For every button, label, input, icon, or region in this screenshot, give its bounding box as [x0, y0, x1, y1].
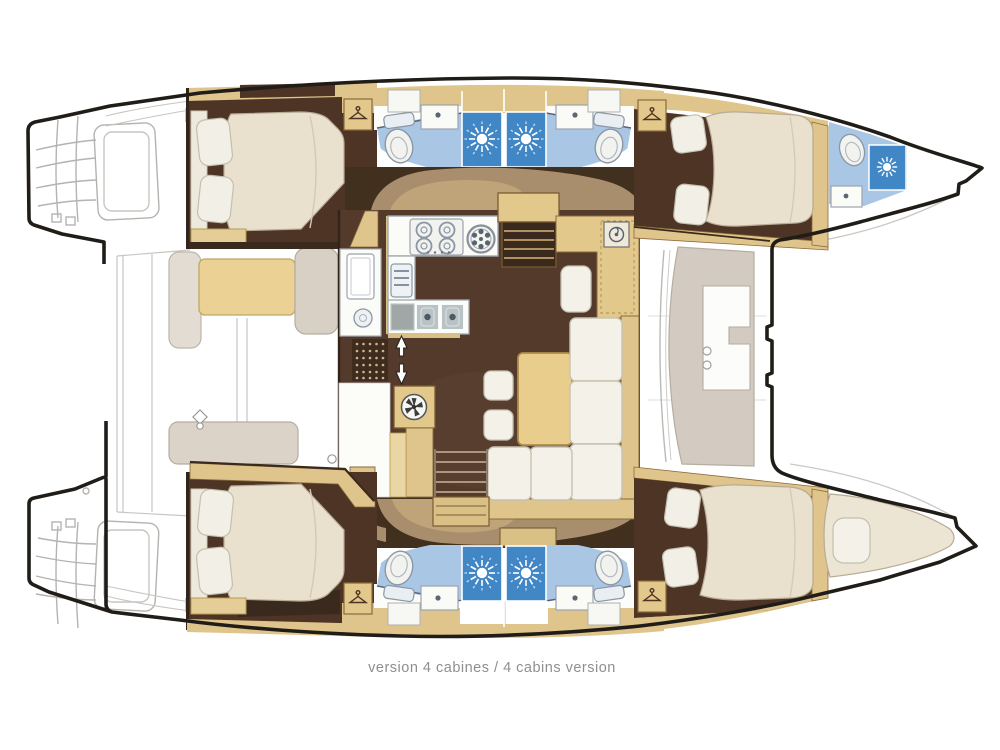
svg-text:version 4 cabines / 4 cabins v: version 4 cabines / 4 cabins version	[368, 660, 616, 676]
